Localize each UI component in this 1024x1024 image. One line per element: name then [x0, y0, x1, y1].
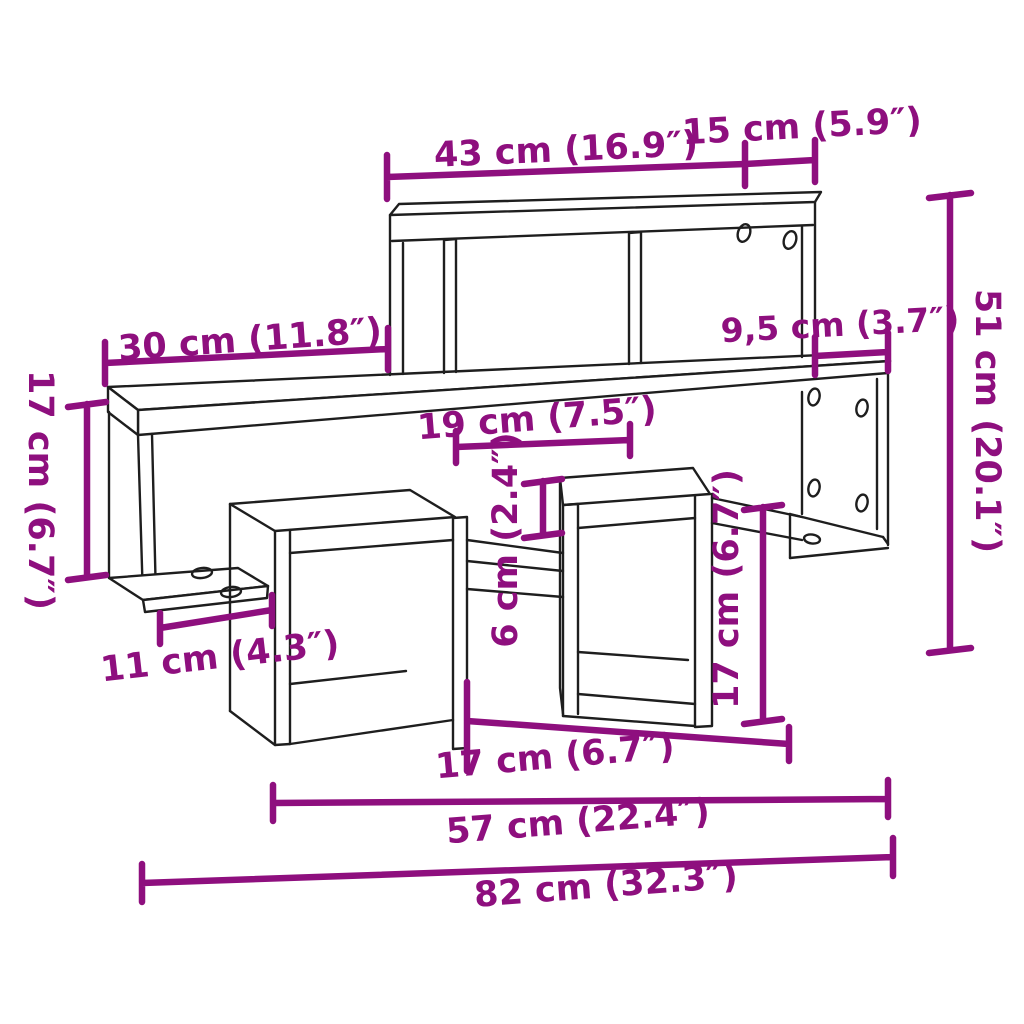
dim-slot-height-label: 6 cm (2.4″) [486, 432, 526, 648]
dim-cube-height-label: 17 cm (6.7″) [707, 469, 747, 709]
shelf-diagram: 43 cm (16.9″) 15 cm (5.9″) 30 cm (11.8″)… [0, 0, 1024, 1024]
dim-left-height-label: 17 cm (6.7″) [20, 370, 60, 610]
dimension-diagram-page: 43 cm (16.9″) 15 cm (5.9″) 30 cm (11.8″)… [0, 0, 1024, 1024]
dim-total-height-label: 51 cm (20.1″) [967, 289, 1007, 553]
